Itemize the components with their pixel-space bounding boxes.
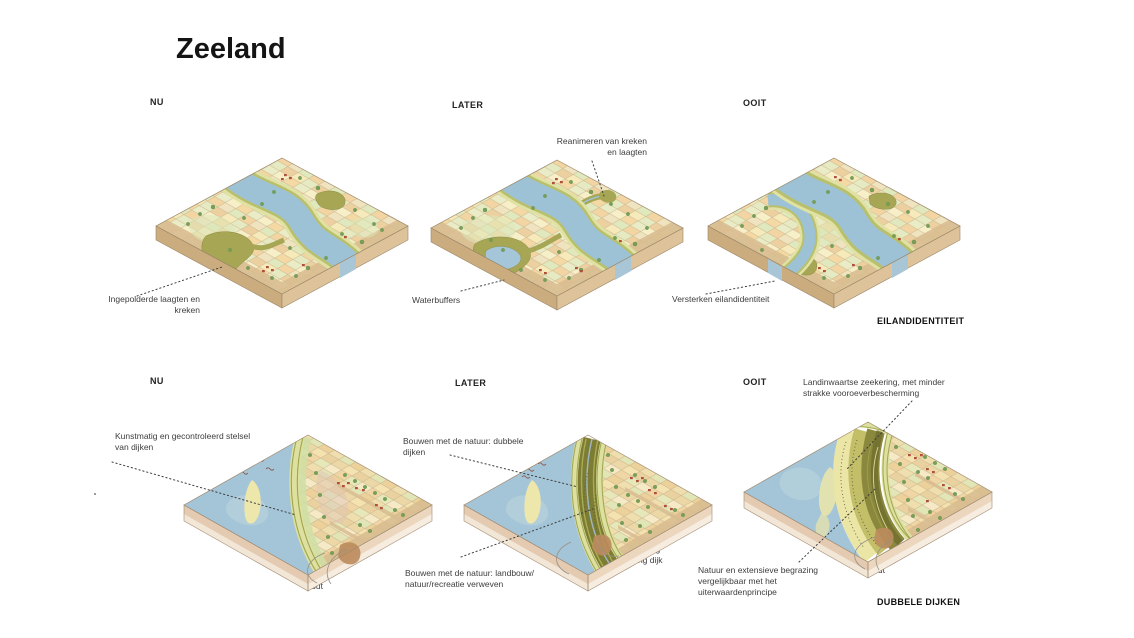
illustration-island-nu — [150, 150, 415, 320]
coast-top — [464, 435, 712, 575]
coast-top — [184, 435, 432, 575]
illustration-island-later — [425, 152, 690, 322]
annotation-landinwaartse: Landinwaartse zeekering, met minder stra… — [803, 377, 973, 399]
zeeland-infographic: Zeeland NU LATER OOIT NU LATER OOIT Rean… — [0, 0, 1134, 638]
illustration-island-ooit — [702, 150, 967, 320]
annotation-line: Landinwaartse zeekering, met minder — [803, 377, 973, 388]
illustration-coast-nu — [170, 425, 440, 610]
row2-category-label: DUBBELE DIJKEN — [877, 597, 960, 607]
page-title: Zeeland — [176, 33, 286, 66]
annotation-line: strakke vooroeverbescherming — [803, 388, 973, 399]
illustration-coast-ooit — [730, 412, 1000, 597]
row2-phase-ooit: OOIT — [743, 377, 767, 387]
row1-phase-later: LATER — [452, 100, 483, 110]
illustration-coast-later — [450, 425, 720, 610]
stray-dot — [94, 493, 96, 495]
row1-phase-nu: NU — [150, 97, 164, 107]
birds — [774, 439, 806, 455]
coast-top — [744, 421, 992, 562]
row2-phase-nu: NU — [150, 376, 164, 386]
annotation-line: Reanimeren van kreken — [500, 136, 647, 147]
row1-phase-ooit: OOIT — [743, 98, 767, 108]
row2-phase-later: LATER — [455, 378, 486, 388]
